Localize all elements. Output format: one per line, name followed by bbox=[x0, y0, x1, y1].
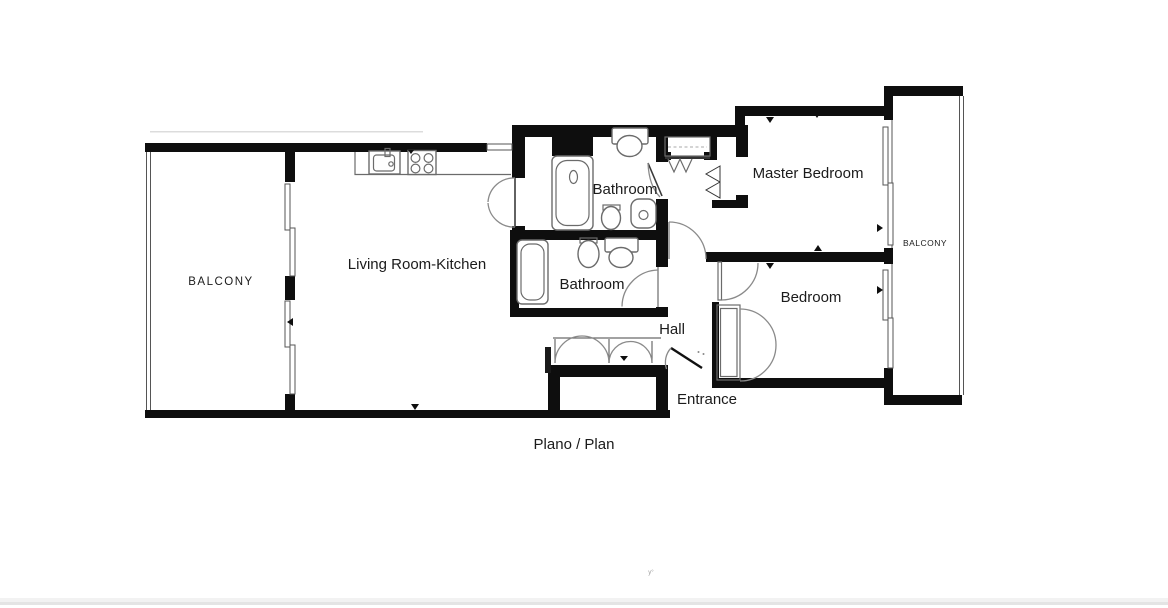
window-sash bbox=[888, 183, 893, 245]
toilet-bowl bbox=[617, 136, 642, 157]
washbasin bbox=[602, 207, 621, 230]
label-bathroom-bottom: Bathroom bbox=[559, 276, 624, 293]
door-swing bbox=[488, 203, 515, 227]
bathtub bbox=[552, 156, 593, 230]
window-sash bbox=[883, 127, 888, 185]
bathroom-bottom-fixtures bbox=[517, 238, 658, 307]
wall-segment bbox=[884, 368, 893, 396]
tick bbox=[766, 117, 774, 123]
label-master-bedroom: Master Bedroom bbox=[753, 165, 864, 182]
floor-plan-page: BALCONY Living Room-Kitchen Bathroom Bat… bbox=[0, 0, 1168, 608]
wall-segment bbox=[145, 410, 670, 418]
window-sash bbox=[285, 301, 290, 347]
wall-segment bbox=[884, 86, 963, 96]
door-swing bbox=[722, 263, 759, 300]
window-sash bbox=[290, 228, 295, 276]
closet-door-swing bbox=[740, 345, 776, 381]
kitchen-window bbox=[487, 144, 512, 150]
wardrobe-door-swing bbox=[555, 336, 609, 363]
label-bedroom: Bedroom bbox=[781, 289, 842, 306]
wall-segment bbox=[884, 395, 962, 405]
entrance-door-swing bbox=[665, 348, 671, 369]
wall-segment bbox=[656, 307, 668, 317]
wall-segment bbox=[712, 302, 719, 380]
wall-segment bbox=[735, 106, 892, 116]
label-bathroom-top: Bathroom bbox=[592, 181, 657, 198]
label-living-kitchen: Living Room-Kitchen bbox=[348, 256, 486, 273]
toilet-bowl bbox=[609, 248, 633, 268]
wall-segment bbox=[712, 200, 748, 208]
wardrobe-door-swing bbox=[609, 342, 652, 364]
open-door-leaf bbox=[545, 347, 551, 373]
wall-segment bbox=[656, 199, 668, 267]
bifold-door bbox=[668, 159, 692, 172]
wall-segment bbox=[736, 137, 748, 157]
faint-line bbox=[150, 131, 423, 133]
tick bbox=[814, 245, 822, 251]
tick bbox=[877, 224, 883, 232]
wall-segment bbox=[884, 248, 893, 264]
bedroom-closet-inner bbox=[721, 309, 738, 377]
door-swing bbox=[622, 270, 658, 307]
label-entrance: Entrance bbox=[677, 391, 737, 408]
kitchen-fixtures bbox=[355, 149, 511, 175]
door-leaf bbox=[718, 262, 722, 300]
wall-segment bbox=[510, 308, 662, 317]
bifold-door bbox=[706, 182, 720, 198]
wall-segment bbox=[512, 137, 525, 178]
wall-segment bbox=[285, 276, 295, 300]
tiny-mark: y° bbox=[648, 570, 654, 576]
wall-segment bbox=[285, 143, 295, 182]
bottom-bar-edge bbox=[0, 602, 1168, 605]
tick bbox=[620, 356, 628, 361]
dot bbox=[703, 353, 705, 355]
tick bbox=[411, 404, 419, 410]
tick bbox=[877, 286, 883, 294]
bifold-door bbox=[706, 166, 720, 182]
walls bbox=[145, 86, 963, 418]
service-shaft bbox=[552, 129, 593, 156]
entrance-door-leaf bbox=[671, 348, 702, 368]
wall-segment bbox=[706, 252, 887, 262]
door-swing bbox=[488, 178, 515, 202]
closet-door-swing bbox=[740, 309, 776, 345]
washbasin bbox=[578, 241, 599, 268]
wall-segment bbox=[548, 365, 668, 377]
label-balcony-right: BALCONY bbox=[903, 238, 947, 248]
wall-segment bbox=[285, 394, 295, 412]
window-sash bbox=[888, 318, 893, 368]
dot bbox=[698, 351, 700, 353]
window-sash bbox=[285, 184, 290, 230]
label-balcony-left: BALCONY bbox=[188, 276, 253, 288]
door-swing bbox=[669, 222, 706, 259]
floor-plan-drawing: BALCONY Living Room-Kitchen Bathroom Bat… bbox=[0, 0, 1168, 608]
bottom-bar bbox=[0, 598, 1168, 605]
window-sash bbox=[883, 270, 888, 320]
label-hall: Hall bbox=[659, 321, 685, 338]
tick bbox=[766, 263, 774, 269]
bidet bbox=[631, 199, 656, 228]
plan-caption: Plano / Plan bbox=[534, 436, 615, 453]
window-sash bbox=[290, 345, 295, 394]
wall-segment bbox=[735, 106, 745, 137]
